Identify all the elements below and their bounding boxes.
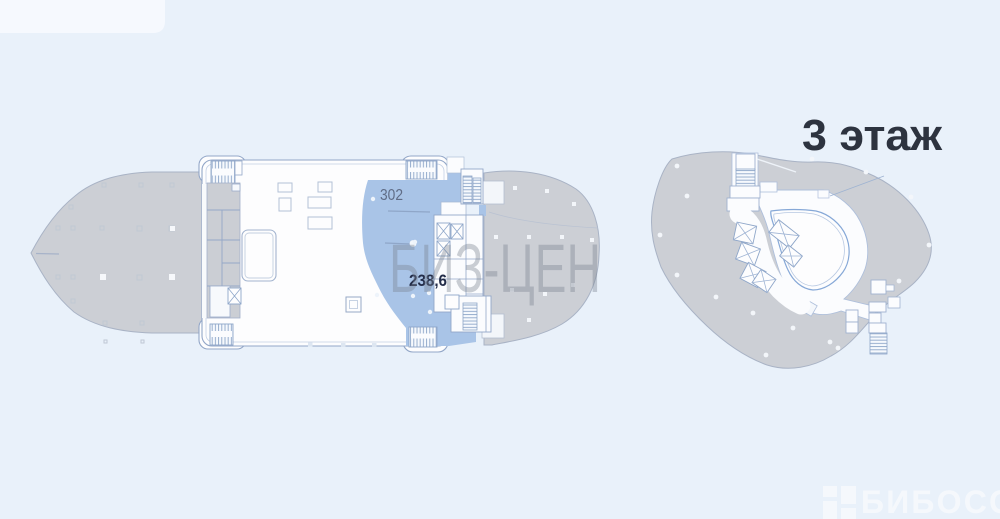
svg-text:3 этаж: 3 этаж — [802, 111, 943, 160]
svg-text:302: 302 — [380, 187, 403, 204]
svg-text:БИЗ-ЦЕН: БИЗ-ЦЕН — [389, 230, 601, 307]
svg-text:БИБОСС: БИБОСС — [861, 484, 1000, 519]
